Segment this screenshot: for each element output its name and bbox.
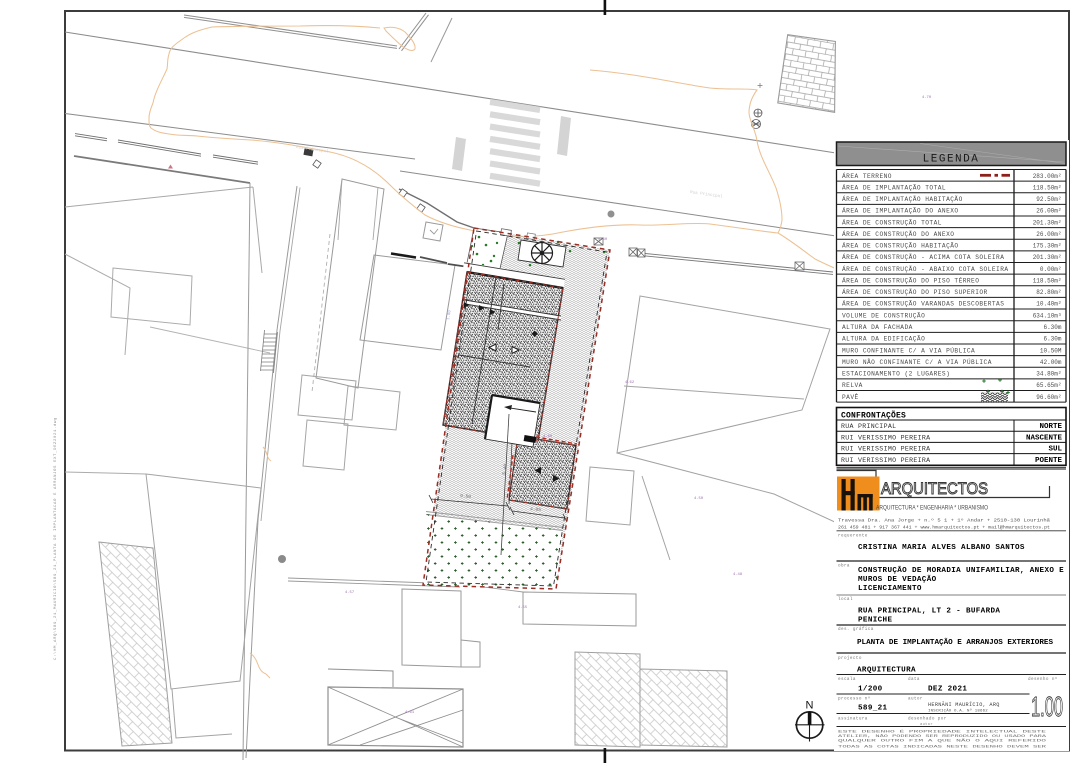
svg-text:201.30m²: 201.30m² [1033, 219, 1062, 226]
svg-text:ÁREA DE CONSTRUÇÃO DO ANEXO: ÁREA DE CONSTRUÇÃO DO ANEXO [842, 231, 954, 238]
svg-text:LICENCIAMENTO: LICENCIAMENTO [858, 585, 922, 593]
svg-text:DEZ 2021: DEZ 2021 [928, 686, 967, 694]
svg-text:ESTE DESENHO É PROPRIEDADE INT: ESTE DESENHO É PROPRIEDADE INTELECTUAL D… [838, 730, 1047, 735]
svg-text:RUI VERISSIMO PEREIRA: RUI VERISSIMO PEREIRA [841, 434, 930, 441]
svg-text:desenho nº: desenho nº [1028, 676, 1058, 682]
svg-text:ALTURA DA FACHADA: ALTURA DA FACHADA [842, 324, 913, 331]
svg-text:PLANTA DE IMPLANTAÇÃO E ARRANJ: PLANTA DE IMPLANTAÇÃO E ARRANJOS EXTERIO… [857, 637, 1053, 647]
svg-text:4.70: 4.70 [922, 96, 932, 100]
svg-text:175.30m²: 175.30m² [1033, 243, 1062, 250]
svg-text:POENTE: POENTE [1035, 457, 1063, 465]
svg-text:PAVÊ: PAVÊ [842, 394, 859, 401]
svg-text:26.00m²: 26.00m² [1036, 208, 1061, 215]
svg-text:NORTE: NORTE [1039, 423, 1062, 431]
svg-text:118.50m²: 118.50m² [1033, 184, 1062, 191]
svg-text:ARQUITECTURA * ENGENHARIA * UR: ARQUITECTURA * ENGENHARIA * URBANISMO [876, 505, 988, 512]
svg-text:96.60m²: 96.60m² [1036, 394, 1061, 401]
svg-text:ESTACIONAMENTO (2 LUGARES): ESTACIONAMENTO (2 LUGARES) [842, 371, 950, 378]
svg-text:34.80m²: 34.80m² [1036, 371, 1061, 378]
svg-text:MURO CONFINANTE C/ A VIA PÚBLI: MURO CONFINANTE C/ A VIA PÚBLICA [842, 347, 975, 354]
svg-text:des. gráfica: des. gráfica [838, 627, 874, 632]
svg-text:processo nº: processo nº [838, 696, 871, 702]
svg-text:82.80m²: 82.80m² [1036, 289, 1061, 296]
svg-text:RUI VERISSIMO PEREIRA: RUI VERISSIMO PEREIRA [841, 457, 930, 464]
svg-text:4.60: 4.60 [598, 238, 608, 242]
svg-text:NASCENTE: NASCENTE [1026, 434, 1063, 442]
svg-text:ARQUITECTURA: ARQUITECTURA [857, 667, 916, 675]
svg-text:589_21: 589_21 [858, 705, 888, 713]
svg-text:TODAS AS COTAS INDICADAS NESTE: TODAS AS COTAS INDICADAS NESTE DESENHO D… [838, 746, 1047, 750]
svg-text:4.05: 4.05 [530, 506, 542, 513]
svg-text:CONSTRUÇÃO DE MORADIA UNIFAMIL: CONSTRUÇÃO DE MORADIA UNIFAMILIAR, ANEXO… [858, 565, 1064, 575]
svg-text:4.61: 4.61 [405, 711, 415, 715]
svg-text:SUL: SUL [1048, 446, 1062, 454]
svg-text:ÁREA DE CONSTRUÇÃO TOTAL: ÁREA DE CONSTRUÇÃO TOTAL [842, 219, 942, 226]
svg-text:ÁREA DE IMPLANTAÇÃO HABITAÇÃO: ÁREA DE IMPLANTAÇÃO HABITAÇÃO [842, 196, 963, 203]
svg-text:10.40m²: 10.40m² [1036, 301, 1061, 308]
svg-text:10.50M: 10.50M [1040, 347, 1062, 354]
svg-text:118.50m²: 118.50m² [1033, 277, 1062, 284]
svg-text:26.00m²: 26.00m² [1036, 231, 1061, 238]
svg-text:MUROS DE VEDAÇÃO: MUROS DE VEDAÇÃO [858, 574, 937, 584]
svg-text:autor: autor [908, 697, 923, 702]
svg-text:data: data [908, 677, 920, 682]
svg-text:261 459 481 + 917 367 441 + ww: 261 459 481 + 917 367 441 + www.hmarquit… [838, 526, 1051, 531]
svg-text:escala: escala [838, 677, 856, 682]
svg-text:C:\HM_ARQ\589_21_MAURICIO\589_: C:\HM_ARQ\589_21_MAURICIO\589_21_PLANTA … [53, 417, 58, 660]
svg-text:634.10m³: 634.10m³ [1033, 312, 1062, 319]
svg-text:4.62: 4.62 [625, 381, 635, 385]
svg-text:ATELIER, NÃO PODENDO SER REPRO: ATELIER, NÃO PODENDO SER REPRODUZIDO OU … [838, 734, 1047, 739]
svg-text:6.30m: 6.30m [1043, 324, 1061, 331]
svg-text:ÁREA DE CONSTRUÇÃO - ABAIXO CO: ÁREA DE CONSTRUÇÃO - ABAIXO COTA SOLEIRA [842, 266, 1009, 273]
svg-text:RUA PRINCIPAL, LT 2 - BUFARDA: RUA PRINCIPAL, LT 2 - BUFARDA [858, 608, 1000, 616]
svg-text:1.00: 1.00 [1031, 691, 1063, 722]
svg-text:283.00m²: 283.00m² [1033, 173, 1062, 180]
svg-text:4.55: 4.55 [518, 606, 528, 610]
svg-text:RELVA: RELVA [842, 382, 863, 389]
svg-text:LEGENDA: LEGENDA [923, 154, 980, 166]
svg-text:ÁREA DE CONSTRUÇÃO DO PISO TÉR: ÁREA DE CONSTRUÇÃO DO PISO TÉRREO [842, 277, 979, 284]
svg-text:CRISTINA MARIA ALVES ALBANO SA: CRISTINA MARIA ALVES ALBANO SANTOS [858, 544, 1025, 552]
svg-text:requerente: requerente [838, 534, 868, 539]
svg-text:local: local [838, 597, 853, 602]
svg-text:4.57: 4.57 [345, 591, 354, 595]
svg-text:6.30m: 6.30m [1043, 336, 1061, 343]
svg-text:ALTURA DA EDIFICAÇÃO: ALTURA DA EDIFICAÇÃO [842, 336, 925, 343]
svg-text:4.60: 4.60 [543, 435, 553, 439]
svg-text:HERNÂNI MAURÍCIO, ARQ: HERNÂNI MAURÍCIO, ARQ [928, 701, 1000, 708]
svg-text:QUALQUER OUTRO FIM A QUE NÃO O: QUALQUER OUTRO FIM A QUE NÃO O AQUI REFE… [838, 739, 1047, 744]
svg-text:4.48: 4.48 [733, 573, 743, 577]
svg-text:ÁREA TERRENO: ÁREA TERRENO [842, 173, 892, 180]
svg-text:1/200: 1/200 [858, 686, 883, 694]
svg-text:42.00m: 42.00m [1040, 359, 1062, 366]
svg-text:VOLUME DE CONSTRUÇÃO: VOLUME DE CONSTRUÇÃO [842, 312, 925, 319]
svg-text:65.65m²: 65.65m² [1036, 382, 1061, 389]
svg-text:RUI VERISSIMO PEREIRA: RUI VERISSIMO PEREIRA [841, 446, 930, 453]
svg-text:ARQUITECTOS: ARQUITECTOS [881, 479, 988, 498]
svg-text:obra: obra [838, 564, 850, 569]
svg-text:ÁREA DE CONSTRUÇÃO HABITAÇÃO: ÁREA DE CONSTRUÇÃO HABITAÇÃO [842, 243, 959, 250]
svg-text:projecto: projecto [838, 656, 862, 661]
svg-text:ÁREA DE IMPLANTAÇÃO TOTAL: ÁREA DE IMPLANTAÇÃO TOTAL [842, 184, 946, 191]
svg-text:N: N [806, 700, 814, 712]
svg-text:ÁREA DE CONSTRUÇÃO VARANDAS DE: ÁREA DE CONSTRUÇÃO VARANDAS DESCOBERTAS [842, 301, 1004, 308]
svg-text:desenhado por: desenhado por [908, 717, 947, 722]
svg-text:RUA PRINCIPAL: RUA PRINCIPAL [841, 423, 896, 430]
svg-text:CONFRONTAÇÕES: CONFRONTAÇÕES [841, 412, 906, 421]
svg-text:assinatura: assinatura [838, 717, 868, 722]
svg-text:ÁREA DE CONSTRUÇÃO - ACIMA COT: ÁREA DE CONSTRUÇÃO - ACIMA COTA SOLEIRA [842, 254, 1004, 261]
svg-text:9.50: 9.50 [460, 493, 472, 500]
svg-text:92.50m²: 92.50m² [1036, 196, 1061, 203]
svg-text:201.30m²: 201.30m² [1033, 254, 1062, 261]
svg-text:ÁREA DE IMPLANTAÇÃO DO ANEXO: ÁREA DE IMPLANTAÇÃO DO ANEXO [842, 208, 959, 215]
svg-text:PENICHE: PENICHE [858, 617, 892, 625]
svg-text:MURO NÃO CONFINANTE C/ A VIA P: MURO NÃO CONFINANTE C/ A VIA PÚBLICA [842, 359, 992, 366]
svg-text:ÁREA DE CONSTRUÇÃO DO PISO SUP: ÁREA DE CONSTRUÇÃO DO PISO SUPERIOR [842, 289, 988, 296]
svg-text:0.00m²: 0.00m² [1040, 266, 1062, 273]
svg-text:4.50: 4.50 [694, 497, 704, 501]
